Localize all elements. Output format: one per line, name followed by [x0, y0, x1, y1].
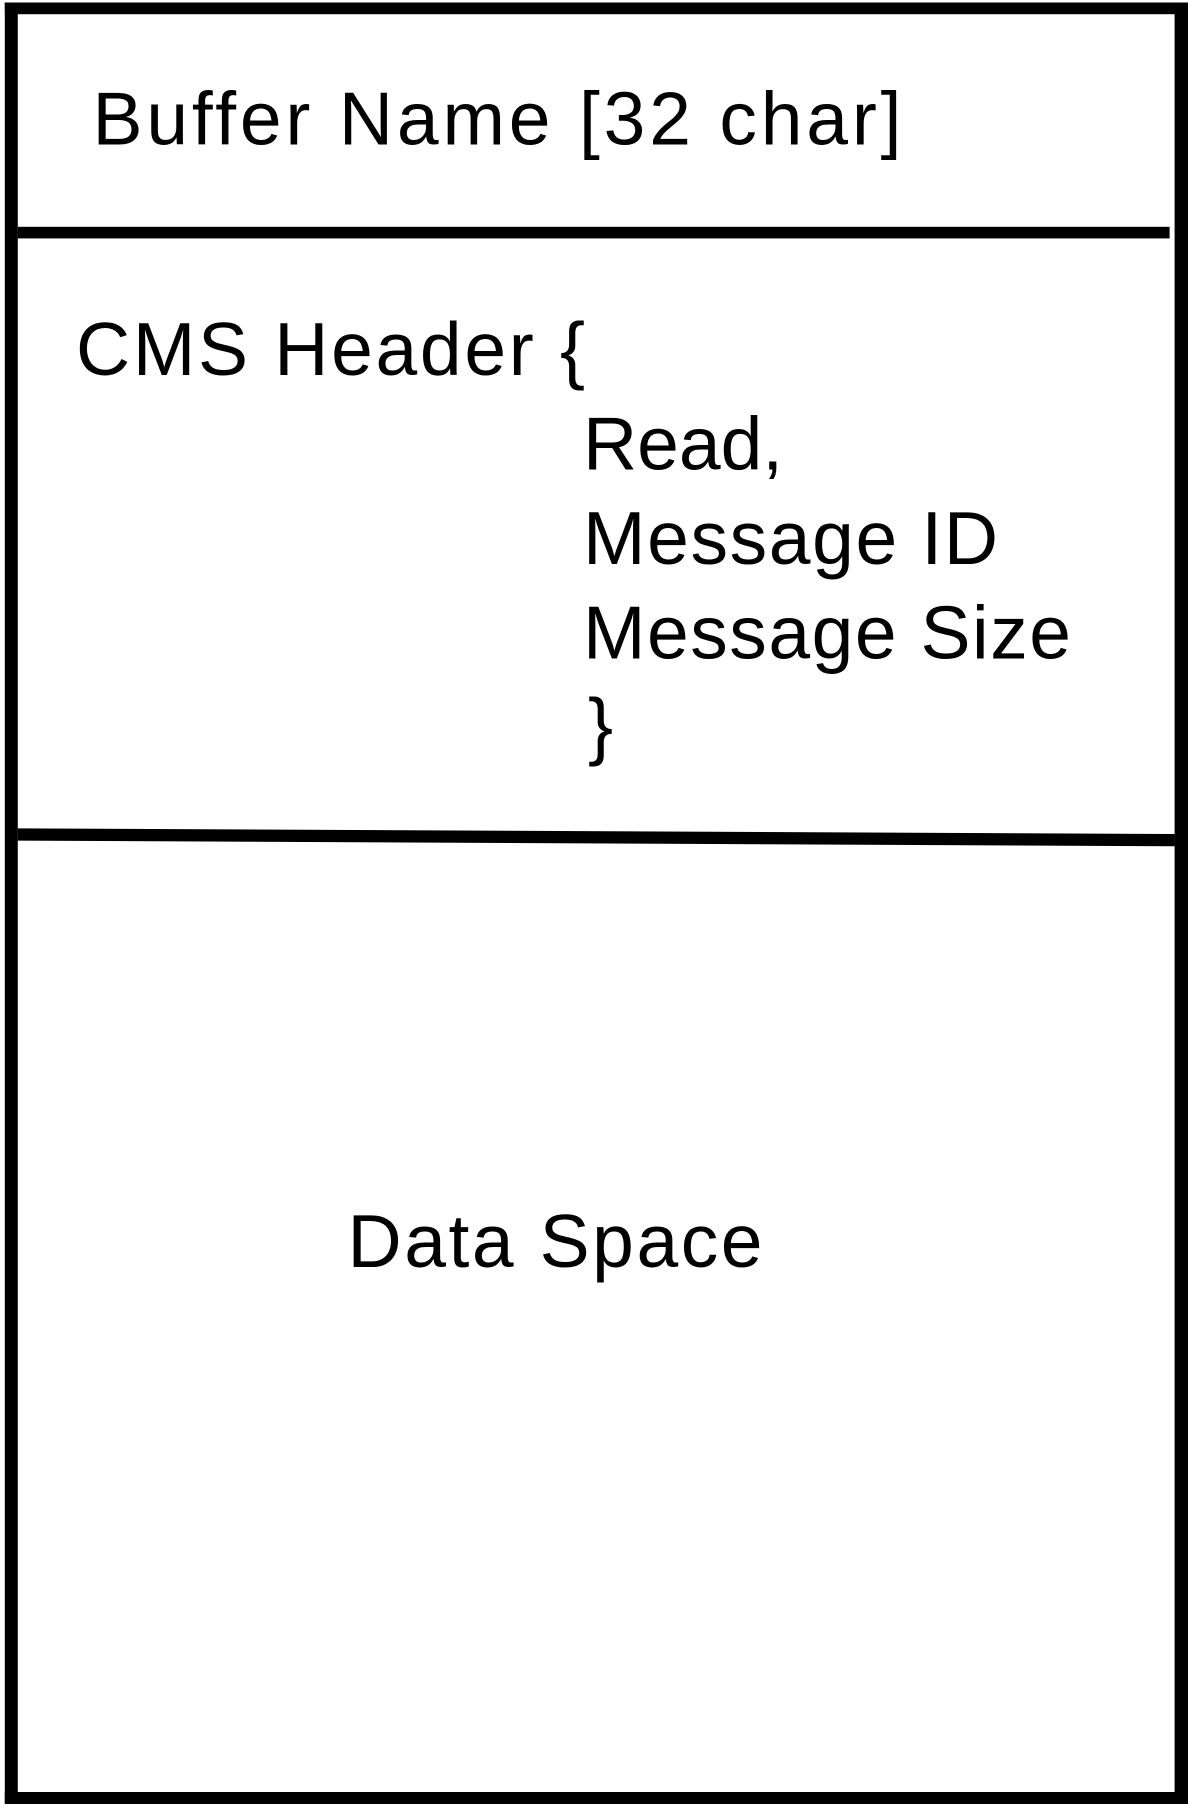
svg-text:}: } — [588, 683, 613, 767]
svg-text:CMS Header {: CMS Header { — [76, 307, 585, 391]
svg-text:Read,: Read, — [583, 402, 783, 486]
svg-text:Data Space: Data Space — [348, 1199, 763, 1283]
svg-text:Message Size: Message Size — [583, 591, 1071, 675]
svg-text:Message ID: Message ID — [583, 496, 998, 580]
